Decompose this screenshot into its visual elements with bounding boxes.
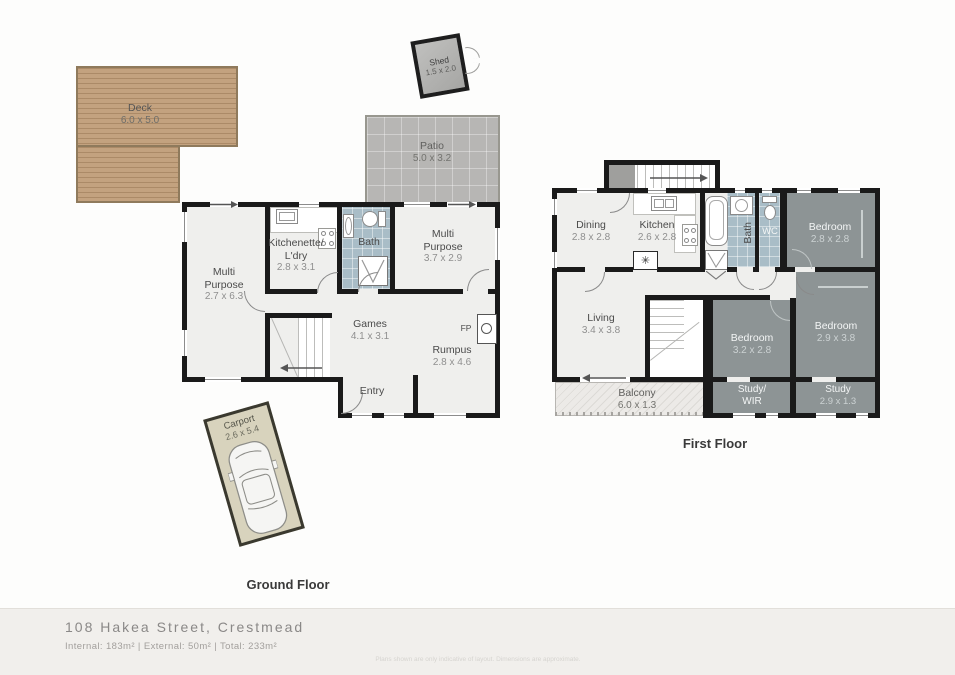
stairs xyxy=(650,300,684,350)
room-label-kitchenette: Kitchenette/ L'dry 2.8 x 3.1 xyxy=(268,237,323,275)
room-label-rumpus: Rumpus 2.8 x 4.6 xyxy=(432,344,471,369)
address-title: 108 Hakea Street, Crestmead xyxy=(65,619,304,635)
fireplace-flue xyxy=(481,323,492,334)
patio-label: Patio 5.0 x 3.2 xyxy=(413,140,451,165)
wall xyxy=(755,193,759,272)
wall xyxy=(657,267,702,272)
shed-area: Shed 1.5 x 2.0 xyxy=(410,33,469,99)
window xyxy=(384,413,404,418)
wall xyxy=(713,295,770,300)
window xyxy=(797,188,811,193)
wall xyxy=(645,295,708,300)
room-label-study: Study 2.9 x 1.3 xyxy=(820,384,856,407)
room-label-multi-left: Multi Purpose 2.7 x 6.3 xyxy=(204,266,243,304)
window xyxy=(552,199,557,215)
wall xyxy=(265,289,317,294)
balcony-rail xyxy=(555,412,717,416)
dishwasher: ✳ xyxy=(633,251,658,270)
room-label-bedroom1: Bedroom 2.8 x 2.8 xyxy=(809,221,852,246)
window xyxy=(182,330,187,356)
window xyxy=(182,212,187,242)
window xyxy=(352,413,372,418)
wall xyxy=(342,289,358,294)
room-label-kitchen: Kitchen 2.6 x 2.8 xyxy=(638,219,676,244)
wall xyxy=(265,313,332,318)
wall xyxy=(552,188,557,382)
sink-icon xyxy=(651,196,677,211)
wall xyxy=(488,289,495,294)
stove-icon xyxy=(682,224,698,246)
wall xyxy=(605,267,633,272)
first-floor-caption: First Floor xyxy=(683,436,747,451)
disclaimer-text: Plans shown are only indicative of layou… xyxy=(375,656,580,663)
shed-label: Shed 1.5 x 2.0 xyxy=(423,53,457,78)
wall xyxy=(780,193,787,272)
door-slide-arrow xyxy=(582,373,626,383)
wall xyxy=(750,377,793,382)
wall xyxy=(815,267,880,272)
car-icon xyxy=(220,433,295,541)
room-label-bedroom2: Bedroom 3.2 x 2.8 xyxy=(731,332,774,357)
wall xyxy=(552,377,708,382)
area-summary: Internal: 183m² | External: 50m² | Total… xyxy=(65,641,277,652)
window xyxy=(205,377,241,382)
toilet-icon xyxy=(762,196,777,203)
wall xyxy=(395,289,463,294)
room-label-bath-first: Bath xyxy=(742,222,755,244)
vanity-icon xyxy=(730,196,753,215)
shed-door-arc xyxy=(465,61,480,76)
room-label-bath-ground: Bath xyxy=(358,236,380,249)
window xyxy=(856,413,868,418)
room-label-wc: WC xyxy=(762,226,778,239)
wall xyxy=(703,413,880,418)
wall xyxy=(557,267,585,272)
wall xyxy=(604,160,720,165)
shed-door-arc xyxy=(465,45,480,60)
wall xyxy=(604,160,609,193)
room-label-living: Living 3.4 x 3.8 xyxy=(582,312,620,337)
window xyxy=(648,188,666,193)
toilet-icon xyxy=(378,211,386,227)
room-label-study-wir: Study/ WIR xyxy=(738,384,766,407)
window xyxy=(552,252,557,268)
wall xyxy=(713,377,727,382)
window xyxy=(816,413,836,418)
door-slide-arrow xyxy=(210,200,238,209)
wall xyxy=(413,375,418,418)
wall xyxy=(703,295,713,418)
toilet-icon xyxy=(764,205,776,220)
carport-area: Carport 2.6 x 5.4 xyxy=(203,401,305,547)
ground-floor-caption: Ground Floor xyxy=(246,577,329,592)
floorplan-page: Deck 6.0 x 5.0 Shed 1.5 x 2.0 Patio 5.0 … xyxy=(0,0,955,675)
window xyxy=(733,413,755,418)
wardrobe-line xyxy=(818,286,868,288)
deck-label: Deck 6.0 x 5.0 xyxy=(121,102,159,127)
wall xyxy=(390,202,395,294)
room-label-entry: Entry xyxy=(360,385,385,398)
wall xyxy=(645,295,650,382)
window xyxy=(299,202,319,207)
room-label-multi-right: Multi Purpose 3.7 x 2.9 xyxy=(423,228,462,266)
stairs-arrow xyxy=(280,363,322,373)
room-label-dining: Dining 2.8 x 2.8 xyxy=(572,219,610,244)
wall xyxy=(715,160,720,193)
door-slide-arrow xyxy=(448,200,476,209)
window xyxy=(838,188,860,193)
bathtub-icon xyxy=(705,196,728,246)
window xyxy=(735,188,745,193)
wall xyxy=(796,377,812,382)
vanity-icon xyxy=(343,214,354,238)
deck-area xyxy=(76,145,180,203)
toilet-icon xyxy=(362,211,378,227)
window xyxy=(495,228,500,260)
window xyxy=(577,188,597,193)
wall xyxy=(790,298,796,413)
wall xyxy=(265,313,270,382)
wall xyxy=(700,193,705,272)
wall xyxy=(836,377,880,382)
window xyxy=(404,202,430,207)
wall xyxy=(875,188,880,418)
window xyxy=(762,188,772,193)
door-swing-marker xyxy=(706,271,726,280)
room-label-balcony: Balcony 6.0 x 1.3 xyxy=(618,387,656,412)
stairs-arrow xyxy=(650,173,708,183)
sink-icon xyxy=(276,209,298,224)
room-label-games: Games 4.1 x 3.1 xyxy=(351,318,389,343)
footer-band: 108 Hakea Street, Crestmead Internal: 18… xyxy=(0,608,955,675)
room-label-bedroom3: Bedroom 2.9 x 3.8 xyxy=(815,320,858,345)
wardrobe-line xyxy=(861,210,863,258)
window xyxy=(434,413,466,418)
fireplace-label: FP xyxy=(461,322,472,335)
shower-icon xyxy=(705,250,728,270)
window xyxy=(766,413,778,418)
